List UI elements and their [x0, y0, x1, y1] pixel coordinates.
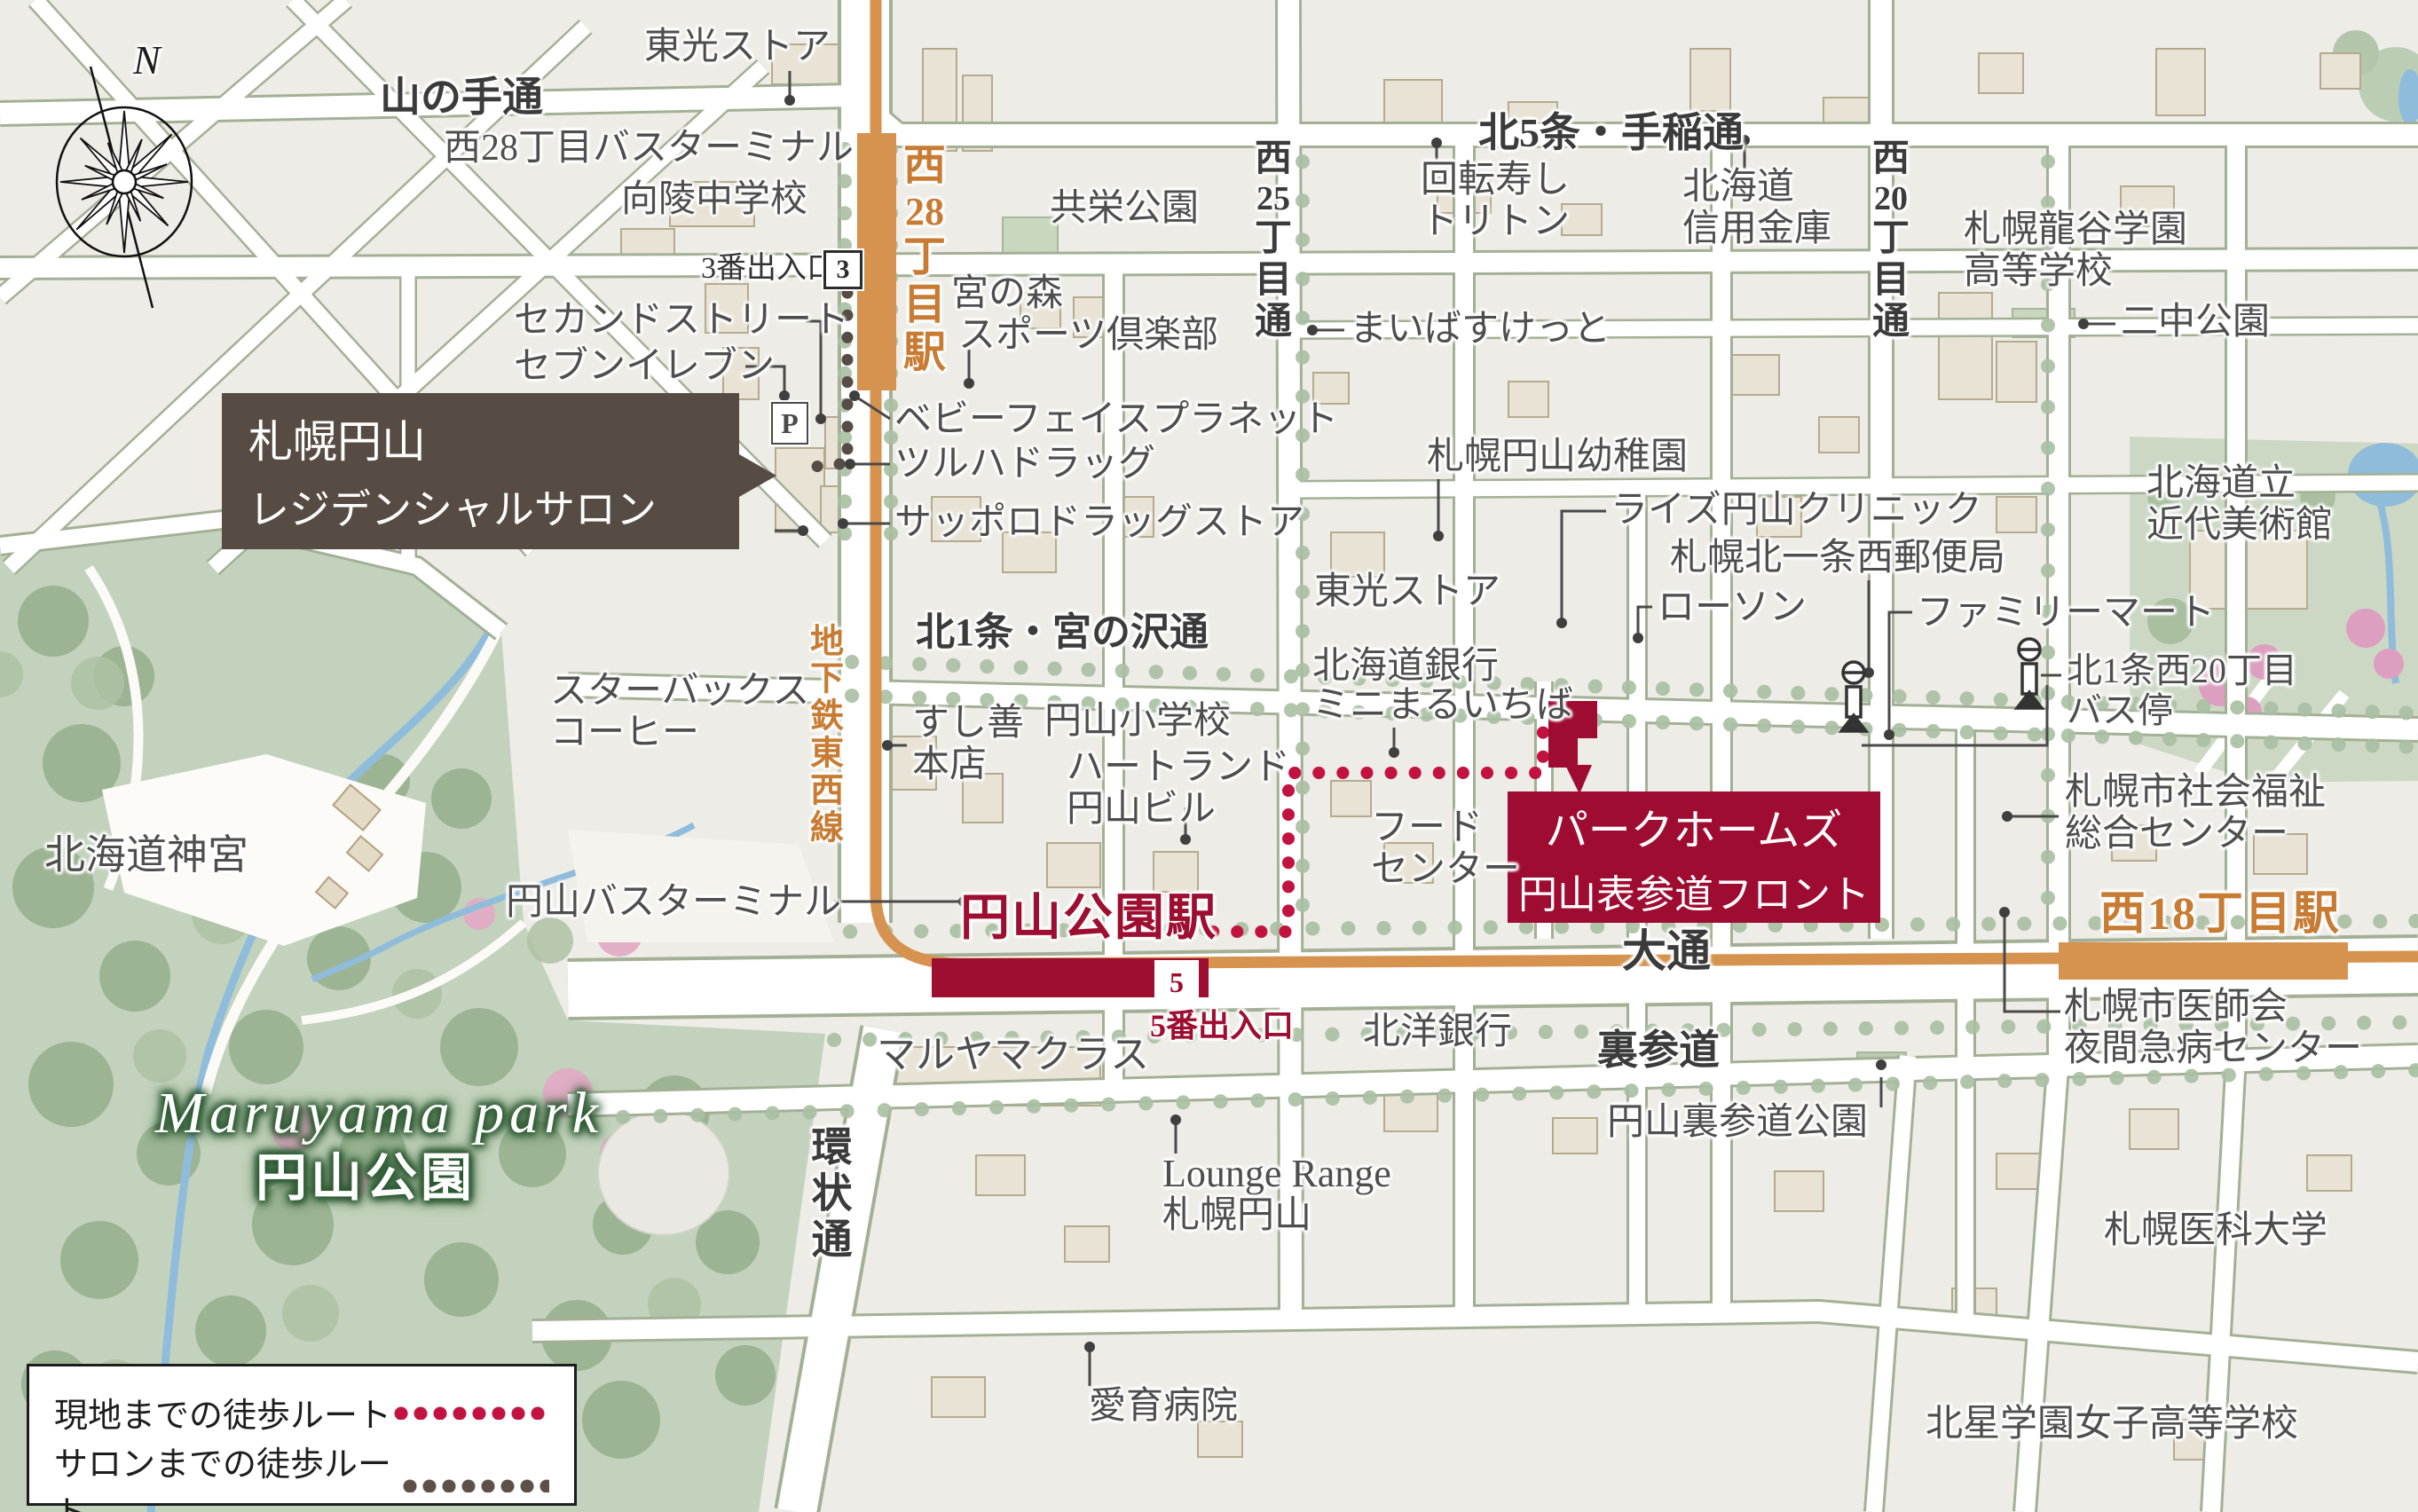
- place-miyanomori-sports: 宮の森 スポーツ倶楽部: [951, 273, 1218, 357]
- place-koryo-school: 向陵中学校: [621, 179, 807, 221]
- exit5-badge: 5: [1156, 962, 1197, 1003]
- parkhomes-name-line2: 円山表参道フロント: [1518, 862, 1870, 919]
- place-seven-eleven: セブンイレブン: [514, 346, 775, 388]
- place-nichu-park: 二中公園: [2121, 302, 2270, 343]
- place-toko-store-2: 東光ストア: [1314, 571, 1500, 613]
- parking-badge: P: [771, 402, 808, 445]
- road-kita1-miyanosawa: 北1条・宮の沢通: [916, 610, 1209, 654]
- salon-name-line2: レジデンシャルサロン: [248, 477, 739, 536]
- place-urasando-park: 円山裏参道公園: [1607, 1102, 1868, 1144]
- place-welfare-center: 札幌市社会福祉 総合センター: [2065, 772, 2326, 855]
- map-root: N 山の手通 北5条・手稲通 北1条・宮の沢通 大通 裏参道 環状通 西25 丁…: [0, 0, 2418, 1512]
- place-ryukoku-hs: 札幌龍谷学園 高等学校: [1964, 209, 2187, 293]
- place-hokkaido-shinkin: 北海道 信用金庫: [1682, 167, 1831, 250]
- road-urasando: 裏参道: [1597, 1028, 1720, 1074]
- salon-callout-arrow: [739, 454, 776, 497]
- place-bus-terminal-w28: 西28丁目バスターミナル: [444, 128, 854, 169]
- place-maruyama-bus-terminal: 円山バスターミナル: [506, 882, 841, 924]
- legend-site-route-swatch: [394, 1406, 549, 1420]
- salon-name-line1: 札幌円山: [248, 406, 739, 470]
- place-post-office: 札幌北一条西郵便局: [1670, 538, 2005, 579]
- park-name-jp: 円山公園: [256, 1150, 476, 1208]
- place-hokusei-girls-hs: 北星学園女子高等学校: [1926, 1404, 2298, 1445]
- place-medical-night-center: 札幌市医師会 夜間急病センター: [2064, 987, 2362, 1070]
- road-odori: 大通: [1622, 926, 1711, 976]
- place-second-street: セカンドストリート: [514, 300, 849, 342]
- place-rise-clinic: ライズ円山クリニック: [1611, 490, 1982, 532]
- place-museum: 北海道立 近代美術館: [2146, 463, 2333, 547]
- exit3-badge: 3: [823, 250, 862, 289]
- road-nishi20: 西20 丁目 通: [1872, 138, 1910, 343]
- place-tsuruha-drug: ツルハドラッグ: [894, 444, 1155, 485]
- place-aiiku-hospital: 愛育病院: [1089, 1386, 1238, 1428]
- legend-salon-route-swatch: [403, 1478, 549, 1492]
- place-minimaru-ichiba: ミニまるいちば: [1312, 685, 1573, 727]
- salon-callout-box: 札幌円山 レジデンシャルサロン: [222, 393, 739, 549]
- place-family-mart: ファミリーマート: [1917, 593, 2215, 634]
- place-kaitenzushi-triton: 回転寿し トリトン: [1421, 160, 1570, 243]
- legend-salon-route-label: サロンまでの徒歩ルート: [54, 1437, 403, 1512]
- place-sapporo-drug: サッポロドラッグストア: [894, 502, 1304, 544]
- station-maruyama-koen: 円山公園駅: [960, 891, 1217, 947]
- place-hokuyo-bank: 北洋銀行: [1363, 1012, 1512, 1053]
- road-yamanote: 山の手通: [380, 75, 543, 121]
- compass-north-label: N: [133, 37, 161, 83]
- place-toko-store-top: 東光ストア: [644, 27, 831, 68]
- place-kyoei-park: 共栄公園: [1050, 188, 1199, 230]
- legend-box: 現地までの徒歩ルート サロンまでの徒歩ルート: [27, 1364, 577, 1506]
- place-lounge-range: Lounge Range 札幌円山: [1162, 1152, 1391, 1237]
- place-maruyama-elementary: 円山小学校: [1044, 701, 1231, 743]
- place-starbucks: スターバックス コーヒー: [550, 671, 809, 754]
- parkhomes-name-line1: パークホームズ: [1546, 795, 1843, 857]
- legend-row-site: 現地までの徒歩ルート: [54, 1388, 549, 1437]
- road-kanjo: 環状通: [806, 1125, 852, 1264]
- station-nishi18: 西18丁目駅: [2099, 889, 2341, 941]
- place-medical-university: 札幌医科大学: [2104, 1210, 2327, 1252]
- place-babyface-planet: ベビーフェイスプラネット: [894, 399, 1338, 441]
- road-nishi25: 西25 丁目 通: [1255, 138, 1292, 343]
- place-maruyama-class: マルヤマクラス: [877, 1033, 1149, 1076]
- station-nishi28: 西28 丁目 駅: [903, 142, 946, 376]
- place-maibasuketto: まいばすけっと: [1350, 309, 1611, 350]
- place-sushizen: すし善 本店: [912, 703, 1024, 786]
- park-name-en: Maruyama park: [155, 1081, 603, 1146]
- parkhomes-callout-box: パークホームズ 円山表参道フロント: [1508, 791, 1880, 923]
- legend-row-salon: サロンまでの徒歩ルート: [54, 1437, 549, 1512]
- legend-site-route-label: 現地までの徒歩ルート: [54, 1388, 391, 1437]
- place-heartland-bldg: ハートランド 円山ビル: [1067, 747, 1290, 831]
- subway-tozai-line-label: 地下鉄東西線: [804, 623, 842, 847]
- place-food-center: フード センター: [1371, 807, 1520, 891]
- exit5-label: 5番出入口: [1150, 1008, 1294, 1043]
- exit3-label: 3番出入口: [701, 252, 837, 286]
- road-kita5-teine: 北5条・手稲通: [1478, 110, 1744, 156]
- place-kindergarten: 札幌円山幼稚園: [1427, 437, 1688, 478]
- place-lawson: ローソン: [1658, 587, 1807, 629]
- place-bus-stop-kita1-nishi20: 北1条西20丁目 バス停: [2067, 651, 2297, 731]
- place-hokkaido-jingu: 北海道神宮: [44, 832, 248, 878]
- place-hokkaido-bank: 北海道銀行: [1312, 646, 1499, 688]
